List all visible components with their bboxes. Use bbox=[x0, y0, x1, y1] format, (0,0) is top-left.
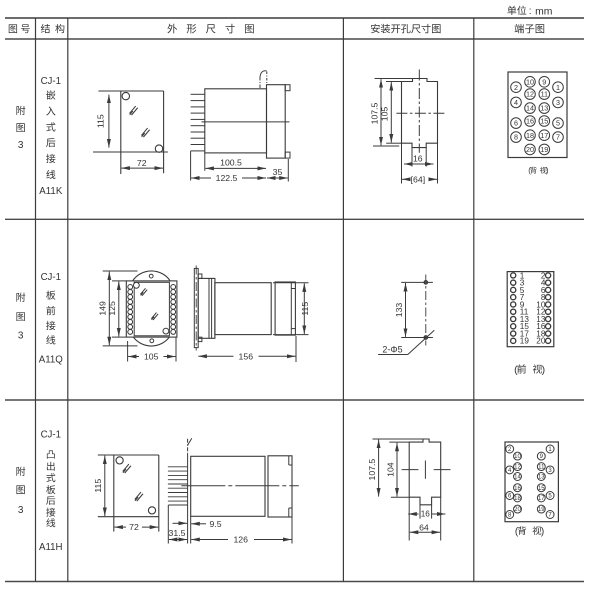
svg-text:4: 4 bbox=[514, 98, 518, 107]
svg-text:[64]: [64] bbox=[411, 174, 426, 184]
svg-text:12: 12 bbox=[526, 90, 534, 99]
svg-text:107.5: 107.5 bbox=[369, 102, 379, 124]
svg-text:10: 10 bbox=[526, 77, 534, 86]
svg-text:107.5: 107.5 bbox=[367, 459, 377, 481]
svg-text:9: 9 bbox=[542, 77, 546, 86]
svg-text:14: 14 bbox=[526, 104, 534, 113]
svg-text:16: 16 bbox=[413, 154, 423, 164]
svg-text:A11K: A11K bbox=[39, 186, 63, 197]
svg-text:17: 17 bbox=[538, 496, 545, 502]
svg-text:10: 10 bbox=[514, 454, 521, 460]
svg-text:3: 3 bbox=[18, 330, 24, 341]
svg-text:15: 15 bbox=[538, 486, 545, 492]
svg-text:18: 18 bbox=[514, 496, 521, 502]
svg-text:11: 11 bbox=[541, 90, 548, 99]
svg-text:11: 11 bbox=[538, 465, 545, 471]
svg-text:20: 20 bbox=[514, 507, 521, 513]
svg-text:A11H: A11H bbox=[39, 542, 63, 553]
svg-text:2: 2 bbox=[514, 83, 518, 92]
svg-text:3: 3 bbox=[18, 140, 24, 151]
svg-text:7: 7 bbox=[556, 133, 560, 142]
svg-text:5: 5 bbox=[556, 119, 560, 128]
svg-text:133: 133 bbox=[394, 303, 404, 318]
svg-text:8: 8 bbox=[514, 133, 518, 142]
svg-text:6: 6 bbox=[514, 119, 518, 128]
svg-text:105: 105 bbox=[380, 107, 390, 122]
svg-text:72: 72 bbox=[137, 158, 147, 168]
svg-text:3: 3 bbox=[18, 505, 24, 516]
svg-text:115: 115 bbox=[300, 302, 310, 316]
svg-text:72: 72 bbox=[129, 522, 139, 532]
svg-text:1: 1 bbox=[556, 83, 560, 92]
svg-text:126: 126 bbox=[233, 534, 248, 544]
svg-text:): ) bbox=[542, 364, 546, 376]
svg-text:CJ-1: CJ-1 bbox=[41, 272, 61, 283]
svg-text:13: 13 bbox=[538, 475, 545, 481]
svg-text:17: 17 bbox=[540, 131, 548, 140]
svg-text:16: 16 bbox=[421, 510, 431, 519]
svg-text:15: 15 bbox=[540, 117, 548, 126]
svg-text:14: 14 bbox=[514, 475, 521, 481]
svg-text:): ) bbox=[541, 526, 544, 537]
svg-text:19: 19 bbox=[520, 337, 530, 346]
svg-text:CJ-1: CJ-1 bbox=[41, 76, 61, 87]
svg-text:(: ( bbox=[515, 526, 519, 537]
svg-text:64: 64 bbox=[419, 522, 429, 532]
svg-text:(: ( bbox=[514, 364, 518, 376]
svg-text:16: 16 bbox=[526, 117, 534, 126]
svg-text:35: 35 bbox=[273, 167, 283, 177]
svg-text:13: 13 bbox=[540, 104, 548, 113]
svg-text:CJ-1: CJ-1 bbox=[41, 429, 61, 440]
svg-text:A11Q: A11Q bbox=[39, 355, 64, 366]
svg-text:mm: mm bbox=[535, 6, 552, 17]
svg-text:): ) bbox=[546, 166, 549, 175]
svg-text:20: 20 bbox=[526, 145, 534, 154]
svg-text:31.5: 31.5 bbox=[169, 528, 186, 538]
svg-text::: : bbox=[529, 6, 532, 17]
svg-text:18: 18 bbox=[526, 131, 534, 140]
svg-text:2-Φ5: 2-Φ5 bbox=[382, 344, 402, 354]
svg-text:115: 115 bbox=[93, 479, 103, 493]
svg-text:104: 104 bbox=[385, 462, 395, 477]
svg-text:12: 12 bbox=[514, 465, 521, 471]
svg-text:20: 20 bbox=[536, 337, 546, 346]
svg-text:9.5: 9.5 bbox=[210, 519, 222, 529]
svg-text:100.5: 100.5 bbox=[220, 157, 242, 167]
svg-text:19: 19 bbox=[538, 507, 545, 513]
svg-text:125: 125 bbox=[107, 301, 117, 316]
svg-text:122.5: 122.5 bbox=[216, 173, 238, 183]
svg-text:149: 149 bbox=[98, 301, 108, 316]
svg-text:156: 156 bbox=[239, 351, 254, 361]
svg-text:16: 16 bbox=[514, 486, 521, 492]
svg-text:3: 3 bbox=[556, 98, 560, 107]
svg-text:115: 115 bbox=[96, 114, 106, 128]
svg-text:19: 19 bbox=[540, 145, 548, 154]
svg-text:105: 105 bbox=[144, 352, 159, 362]
